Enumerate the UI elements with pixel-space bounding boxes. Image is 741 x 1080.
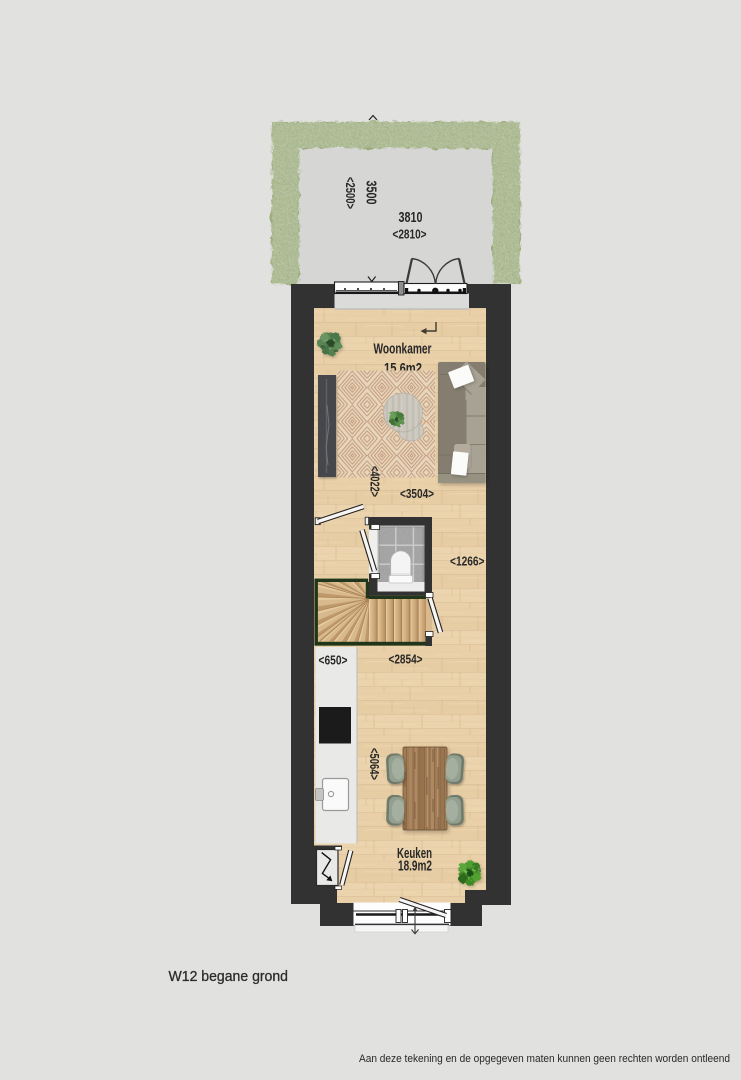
svg-text:<650>: <650> (319, 653, 348, 668)
svg-text:3810: 3810 (399, 210, 423, 226)
svg-text:<3504>: <3504> (400, 486, 434, 501)
svg-text:<2854>: <2854> (389, 652, 423, 667)
svg-text:18.9m2: 18.9m2 (398, 858, 432, 875)
svg-text:<4022>: <4022> (368, 466, 383, 497)
svg-text:<1266>: <1266> (450, 554, 485, 569)
svg-text:<2500>: <2500> (343, 177, 358, 209)
svg-text:3500: 3500 (363, 181, 379, 205)
svg-text:<5064>: <5064> (367, 748, 382, 780)
svg-text:<2810>: <2810> (393, 227, 427, 242)
svg-text:Aan deze tekening en de opgege: Aan deze tekening en de opgegeven maten … (359, 1053, 730, 1065)
svg-text:Woonkamer: Woonkamer (374, 341, 432, 358)
svg-text:W12 begane grond: W12 begane grond (169, 969, 289, 985)
